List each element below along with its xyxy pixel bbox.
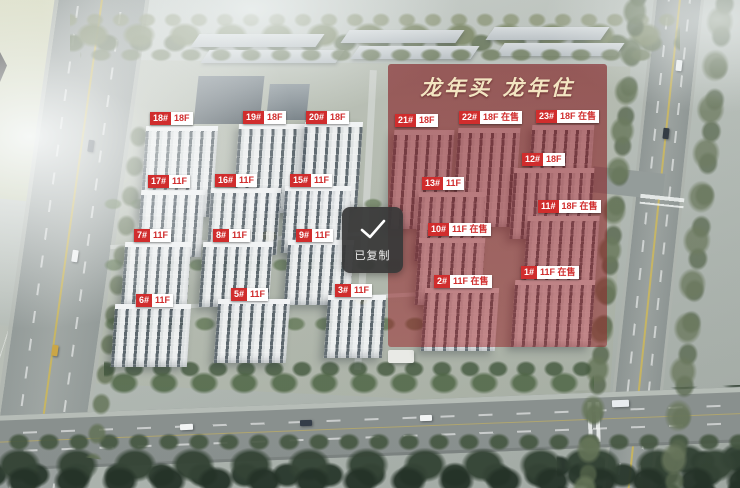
- building-floors-status: 11F: [152, 294, 173, 307]
- building-floors-status: 11F: [247, 288, 268, 301]
- building-number: 12#: [522, 153, 543, 166]
- car: [300, 420, 312, 426]
- building-floors-status: 11F: [312, 229, 333, 242]
- building-label-6[interactable]: 6#11F: [136, 294, 173, 307]
- building-number: 13#: [422, 177, 443, 190]
- building-number: 20#: [306, 111, 327, 124]
- building-label-9[interactable]: 9#11F: [296, 229, 333, 242]
- building-number: 21#: [395, 114, 416, 127]
- building-label-17[interactable]: 17#11F: [148, 175, 190, 188]
- building-floors-status: 11F 在售: [537, 266, 579, 279]
- building-number: 23#: [536, 110, 557, 123]
- building-floors-status: 11F: [311, 174, 332, 187]
- building-label-8[interactable]: 8#11F: [213, 229, 250, 242]
- building-label-18[interactable]: 18#18F: [150, 112, 193, 125]
- building-label-12[interactable]: 12#18F: [522, 153, 565, 166]
- building-label-22[interactable]: 22#18F 在售: [459, 111, 522, 124]
- building-label-7[interactable]: 7#11F: [134, 229, 171, 242]
- building-floors-status: 11F 在售: [450, 275, 492, 288]
- warehouse: [340, 30, 464, 43]
- building-number: 2#: [434, 275, 450, 288]
- building-floors-status: 18F 在售: [557, 110, 599, 123]
- warehouse: [485, 27, 609, 40]
- building-floors-status: 18F 在售: [559, 200, 601, 213]
- building-label-15[interactable]: 15#11F: [290, 174, 332, 187]
- promo-title: 龙年买 龙年住: [388, 72, 607, 102]
- building-floors-status: 18F: [416, 114, 438, 127]
- building-number: 17#: [148, 175, 169, 188]
- building-label-11[interactable]: 11#18F 在售: [538, 200, 601, 213]
- tower-6: [111, 304, 191, 367]
- car: [675, 60, 682, 72]
- car: [662, 128, 669, 140]
- tree-band-south: [0, 458, 740, 488]
- building-floors-status: 11F: [236, 174, 257, 187]
- building-number: 8#: [213, 229, 229, 242]
- building-number: 1#: [521, 266, 537, 279]
- building-number: 11#: [538, 200, 559, 213]
- building-label-5[interactable]: 5#11F: [231, 288, 268, 301]
- building-number: 10#: [428, 223, 449, 236]
- building-floors-status: 11F: [169, 175, 190, 188]
- car: [420, 415, 432, 421]
- building-label-23[interactable]: 23#18F 在售: [536, 110, 599, 123]
- building-label-19[interactable]: 19#18F: [243, 111, 286, 124]
- checkmark-icon: [358, 217, 388, 239]
- building-label-21[interactable]: 21#18F: [395, 114, 438, 127]
- building-number: 22#: [459, 111, 480, 124]
- building-label-2[interactable]: 2#11F 在售: [434, 275, 492, 288]
- building-number: 5#: [231, 288, 247, 301]
- building-label-20[interactable]: 20#18F: [306, 111, 349, 124]
- bus: [612, 400, 629, 408]
- masterplan-render: 龙年买 龙年住 18#18F19#18F20#18F21#18F22#18F 在…: [0, 0, 740, 488]
- building-label-16[interactable]: 16#11F: [215, 174, 257, 187]
- building-number: 9#: [296, 229, 312, 242]
- tower-3: [324, 295, 386, 358]
- building-floors-status: 18F: [327, 111, 349, 124]
- building-floors-status: 11F: [229, 229, 250, 242]
- building-floors-status: 11F: [351, 284, 372, 297]
- building-label-3[interactable]: 3#11F: [335, 284, 372, 297]
- tree-band-north-front: [80, 46, 660, 66]
- building-number: 6#: [136, 294, 152, 307]
- building-floors-status: 18F 在售: [480, 111, 522, 124]
- building-number: 16#: [215, 174, 236, 187]
- toast-message: 已复制: [355, 247, 391, 263]
- pergola: [388, 350, 414, 363]
- copied-toast: 已复制: [342, 207, 403, 273]
- building-floors-status: 11F 在售: [449, 223, 491, 236]
- building-floors-status: 18F: [543, 153, 565, 166]
- building-number: 18#: [150, 112, 171, 125]
- building-number: 19#: [243, 111, 264, 124]
- building-floors-status: 18F: [264, 111, 286, 124]
- building-label-10[interactable]: 10#11F 在售: [428, 223, 491, 236]
- building-number: 7#: [134, 229, 150, 242]
- building-number: 3#: [335, 284, 351, 297]
- building-floors-status: 11F: [150, 229, 171, 242]
- building-number: 15#: [290, 174, 311, 187]
- building-floors-status: 18F: [171, 112, 193, 125]
- tower-5: [214, 299, 290, 363]
- building-label-13[interactable]: 13#11F: [422, 177, 464, 190]
- building-label-1[interactable]: 1#11F 在售: [521, 266, 579, 279]
- building-floors-status: 11F: [443, 177, 464, 190]
